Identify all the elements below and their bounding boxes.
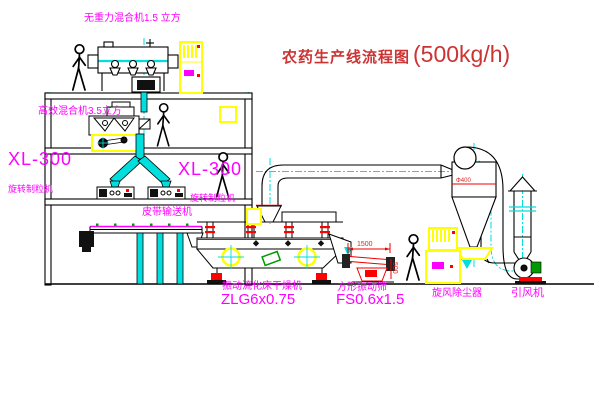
fan-motor [531,262,541,273]
label-granulator-right-name: 旋转制粒机 [190,194,235,203]
induced-draft-fan [514,258,546,284]
person-roof [73,45,85,90]
roof-slab [45,93,252,99]
discharge-arrow-icon [462,260,472,269]
granulator-right [148,181,185,199]
label-dryer-model: ZLG6x0.75 [221,292,295,307]
fluid-bed-dryer [197,206,352,284]
label-belt-conveyor: 皮带输送机 [142,208,192,218]
drawing-title: 农药生产线流程图 (500kg/h) [282,44,510,65]
dryer-nozzles [205,222,330,238]
label-granulator-right-model: XL-300 [178,160,242,178]
label-granulator-left-model: XL-300 [8,150,72,168]
cyclone-top-outlet [454,147,476,169]
conveyor-drive [79,231,94,247]
cyclone-collector [456,248,492,259]
wall-cabinet-midfloor [220,107,236,122]
title-capacity: (500kg/h) [413,44,510,65]
pesticide-line-flow-diagram: 农药生产线流程图 (500kg/h) 无重力混合机1.5 立方 高效混合机3.5… [0,0,600,403]
dim-screen-height: 500 [391,262,398,274]
dim-screen-length: 1500 [357,241,373,248]
label-fan: 引风机 [511,288,544,299]
person-ground [407,235,419,280]
belt-conveyor [79,224,203,285]
dim-cyclone-diameter: Φ400 [456,178,471,184]
granulator-left [97,181,134,199]
label-gravity-free-mixer: 无重力混合机1.5 立方 [84,14,181,24]
control-cabinet-dryer [426,228,460,283]
fan-base [519,277,542,282]
vibrating-screen [342,243,395,282]
label-screen-model: FS0.6x1.5 [336,292,404,307]
label-cyclone: 旋风除尘器 [432,289,482,299]
label-granulator-left-name: 旋转制粒机 [8,185,53,194]
person-midfloor [157,104,169,146]
stack-cap [510,177,535,191]
label-high-efficiency-mixer: 高效混合机3.5立方 [38,107,122,117]
gravity-free-mixer [88,39,178,112]
title-text: 农药生产线流程图 [282,50,410,65]
control-cabinet-roof [180,42,202,93]
hopper-on-column [247,209,261,224]
